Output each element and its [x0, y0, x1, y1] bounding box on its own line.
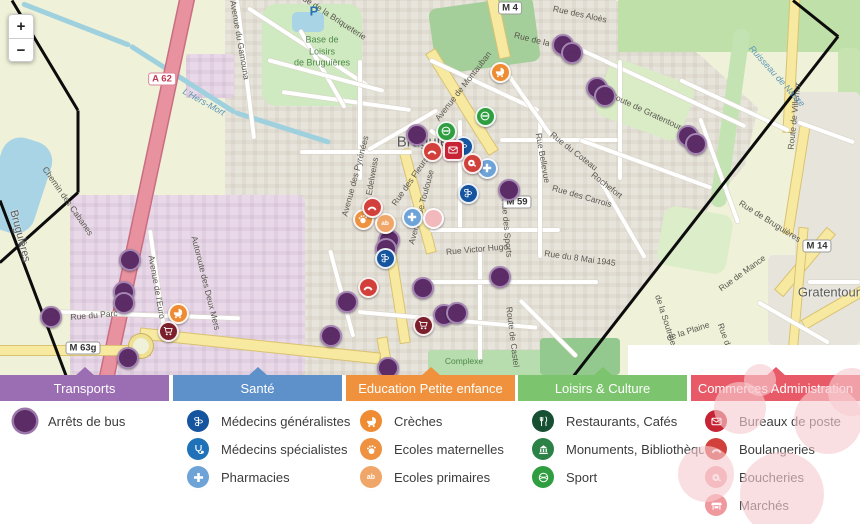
- map-region: [292, 12, 324, 32]
- app-window: Rue de la BriqueterieAvenue du GamounaAv…: [0, 0, 860, 524]
- water-label: Ruisseau de Nauze: [747, 43, 807, 108]
- bus-stop-marker[interactable]: BUS: [685, 133, 707, 155]
- legend-item-label: Ecoles maternelles: [394, 442, 504, 457]
- sports-complex-label: Complexe: [445, 356, 483, 366]
- legend-section-title: Education Petite enfance: [346, 375, 515, 401]
- envelope-icon: [705, 410, 727, 432]
- legend-section-arrow-icon: [766, 367, 786, 376]
- legend-item: Ecoles maternelles: [360, 437, 504, 461]
- legend-section-2: SantéMédecins généralistesMédecins spéci…: [173, 375, 342, 524]
- panel-spacer: [628, 345, 860, 375]
- bus-stop-marker[interactable]: BUS: [113, 292, 135, 314]
- bus-stop-marker[interactable]: BUS: [498, 179, 520, 201]
- zoom-control: + −: [8, 14, 34, 62]
- bus-stop-marker[interactable]: BUS: [40, 306, 62, 328]
- faded-marker[interactable]: [423, 208, 444, 229]
- bus-stop-marker[interactable]: BUS: [119, 249, 141, 271]
- street-segment: [808, 280, 860, 284]
- legend-section-1: TransportsBUSArrêts de bus: [0, 375, 169, 524]
- legend-item-label: Arrêts de bus: [48, 414, 125, 429]
- hand-icon: [360, 438, 382, 460]
- road-shield: M 63g: [66, 342, 101, 355]
- legend-item-label: Médecins généralistes: [221, 414, 350, 429]
- legend-panel: TransportsBUSArrêts de busSantéMédecins …: [0, 375, 860, 524]
- legend-item: Bureaux de poste: [705, 409, 841, 433]
- bus-stop-marker[interactable]: BUS: [446, 302, 468, 324]
- legend-item-label: Sport: [566, 470, 597, 485]
- street-segment: [430, 280, 598, 284]
- legend-section-3: Education Petite enfanceCrèchesEcoles ma…: [346, 375, 515, 524]
- bus-stop-marker[interactable]: BUS: [377, 357, 399, 375]
- legend-item-label: Pharmacies: [221, 470, 290, 485]
- sport-marker[interactable]: [475, 106, 496, 127]
- legend-item: Pharmacies: [187, 465, 290, 489]
- legend-item-label: Boulangeries: [739, 442, 815, 457]
- legend-item: Boucheries: [705, 465, 804, 489]
- legend-item: Marchés: [705, 493, 789, 517]
- legend-section-arrow-icon: [248, 367, 268, 376]
- legend-item: Boulangeries: [705, 437, 815, 461]
- pharmacy-marker[interactable]: [402, 207, 423, 228]
- bakery-marker[interactable]: [362, 197, 383, 218]
- bus-icon: BUS: [14, 410, 36, 432]
- bus-stop-marker[interactable]: BUS: [561, 42, 583, 64]
- stall-icon: [705, 494, 727, 516]
- town-label: Gratentour: [798, 285, 860, 300]
- map-region: [655, 204, 734, 275]
- park-label: Base deLoisirsde Bruguières: [294, 34, 350, 69]
- pram-icon: [360, 410, 382, 432]
- stethoscope-icon: [187, 438, 209, 460]
- legend-section-arrow-icon: [421, 367, 441, 376]
- monument-icon: [532, 438, 554, 460]
- road-shield: M 14: [802, 240, 831, 253]
- zoom-out-button[interactable]: −: [8, 38, 34, 62]
- map-canvas[interactable]: Rue de la BriqueterieAvenue du GamounaAv…: [0, 0, 860, 375]
- meat-icon: [705, 466, 727, 488]
- restaurant-icon: [532, 410, 554, 432]
- boundary-line: [77, 110, 80, 192]
- legend-item-label: Ecoles primaires: [394, 470, 490, 485]
- street-segment: [618, 60, 622, 180]
- legend-item-label: Marchés: [739, 498, 789, 513]
- bakery-marker[interactable]: [358, 277, 379, 298]
- legend-section-title: Commerces Administration: [691, 375, 860, 401]
- post-office-marker[interactable]: [443, 140, 464, 161]
- legend-item-label: Crèches: [394, 414, 442, 429]
- road-shield: M 4: [498, 2, 522, 15]
- abc-icon: ab: [360, 466, 382, 488]
- legend-item: abEcoles primaires: [360, 465, 490, 489]
- legend-item: BUSArrêts de bus: [14, 409, 125, 433]
- cross-icon: [187, 466, 209, 488]
- zoom-in-button[interactable]: +: [8, 14, 34, 38]
- bus-stop-marker[interactable]: BUS: [336, 291, 358, 313]
- bus-stop-marker[interactable]: BUS: [320, 325, 342, 347]
- butcher-marker[interactable]: [462, 153, 483, 174]
- bus-stop-marker[interactable]: BUS: [594, 85, 616, 107]
- legend-section-title: Loisirs & Culture: [518, 375, 687, 401]
- caduceus-icon: [187, 410, 209, 432]
- market-marker[interactable]: [158, 321, 179, 342]
- bus-stop-marker[interactable]: BUS: [412, 277, 434, 299]
- legend-item-label: Bureaux de poste: [739, 414, 841, 429]
- doctor-marker[interactable]: [458, 183, 479, 204]
- legend-section-title: Transports: [0, 375, 169, 401]
- legend-section-arrow-icon: [75, 367, 95, 376]
- legend-section-4: Loisirs & CultureRestaurants, CafésMonum…: [518, 375, 687, 524]
- croissant-icon: [705, 438, 727, 460]
- parking-icon: P: [310, 4, 319, 19]
- legend-item: Médecins spécialistes: [187, 437, 347, 461]
- legend-item: Médecins généralistes: [187, 409, 350, 433]
- legend-item: Crèches: [360, 409, 442, 433]
- bus-stop-marker[interactable]: BUS: [117, 347, 139, 369]
- street-label: de la Soutrine: [653, 294, 679, 347]
- legend-item-label: Boucheries: [739, 470, 804, 485]
- ball-icon: [532, 466, 554, 488]
- doctor-marker[interactable]: [375, 248, 396, 269]
- legend-item-label: Médecins spécialistes: [221, 442, 347, 457]
- legend-section-arrow-icon: [593, 367, 613, 376]
- road-shield: A 62: [148, 73, 176, 86]
- sport-marker[interactable]: [436, 121, 457, 142]
- bus-stop-marker[interactable]: BUS: [489, 266, 511, 288]
- market-marker[interactable]: [413, 315, 434, 336]
- legend-item: Sport: [532, 465, 597, 489]
- legend-section-5: Commerces AdministrationBureaux de poste…: [691, 375, 860, 524]
- street-segment: [478, 252, 482, 360]
- legend-item-label: Restaurants, Cafés: [566, 414, 677, 429]
- bakery-marker[interactable]: [422, 141, 443, 162]
- legend-section-title: Santé: [173, 375, 342, 401]
- creche-marker[interactable]: [490, 62, 511, 83]
- legend-item: Restaurants, Cafés: [532, 409, 677, 433]
